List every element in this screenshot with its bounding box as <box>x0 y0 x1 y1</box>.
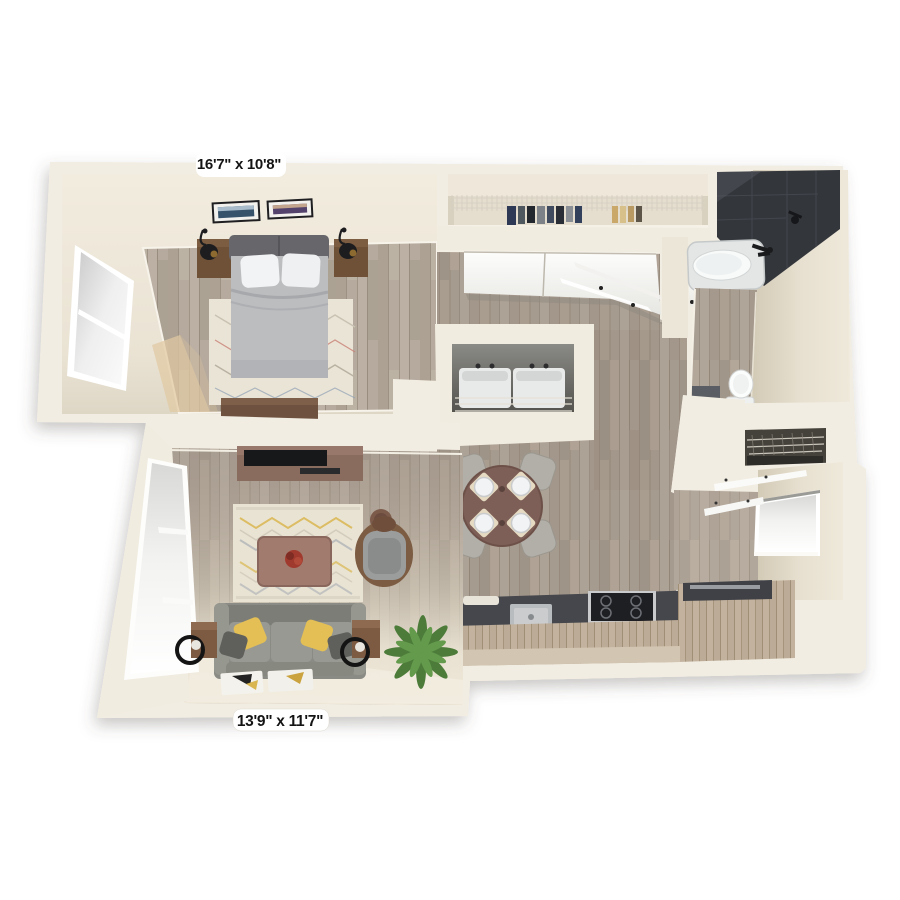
svg-text:13'9" x 11'7": 13'9" x 11'7" <box>237 713 323 730</box>
svg-text:16'7" x 10'8": 16'7" x 10'8" <box>197 156 281 173</box>
